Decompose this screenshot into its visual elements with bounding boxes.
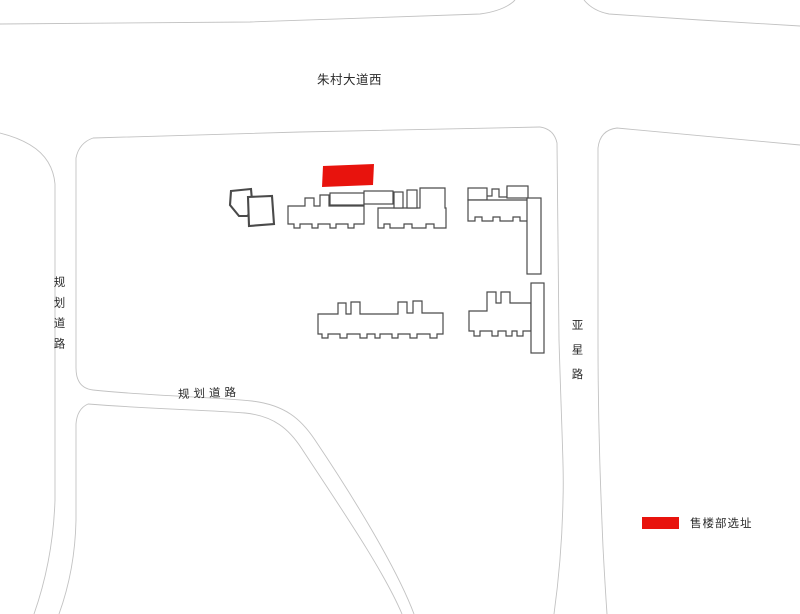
building-row1-west-tab-2 <box>407 190 417 208</box>
building-row1-west-roof-panel-2 <box>364 191 393 204</box>
building-row1-west-tab-1 <box>394 192 403 208</box>
building-row2-east-tower <box>531 283 544 353</box>
road-edge-left-east-upper <box>76 138 93 390</box>
sales-office-site-marker <box>322 164 374 187</box>
building-row1-east-roof-panel-1 <box>468 188 487 200</box>
building-row2-east-slab-body <box>469 292 531 336</box>
road-edge-middle-lower <box>88 404 402 614</box>
road-label-planned-road-west: 规划道路 <box>52 276 64 358</box>
road-label-planned-road-middle: 规划道路 <box>178 388 240 402</box>
legend: 售楼部选址 <box>642 515 753 531</box>
road-label-yaxing-road: 亚星路 <box>570 319 582 393</box>
building-row1-east-slab <box>468 186 541 274</box>
building-footprints <box>230 186 544 353</box>
road-edge-left-east-lower <box>59 404 88 614</box>
road-edge-right-west <box>540 127 563 614</box>
building-row2-west-slab <box>318 301 443 338</box>
building-row1-west-slab <box>288 188 446 228</box>
building-row2-east-slab <box>469 283 544 353</box>
building-row1-east-mid-notch <box>487 187 507 197</box>
road-edge-top-upper-east <box>584 0 800 26</box>
road-edge-middle-upper <box>93 390 414 614</box>
road-edge-top-upper-west <box>0 0 515 24</box>
road-edge-right-east <box>598 128 800 614</box>
building-northwest-small-wing-b <box>248 196 274 226</box>
building-row1-west-roof-panel-1 <box>330 193 364 205</box>
site-plan-canvas: 朱村大道西 规划道路 规划道路 亚星路 售楼部选址 <box>0 0 800 614</box>
road-edge-left-west <box>0 133 55 614</box>
building-row1-east-roof-panel-2 <box>507 186 528 198</box>
legend-red-swatch <box>642 517 679 529</box>
building-row1-east-slab-body <box>468 200 528 221</box>
legend-label: 售楼部选址 <box>690 515 753 531</box>
building-row1-east-tower <box>527 198 541 274</box>
building-northwest-small <box>230 189 274 226</box>
road-label-zhucun-avenue-west: 朱村大道西 <box>317 74 382 87</box>
road-edge-top-lower <box>93 127 540 138</box>
